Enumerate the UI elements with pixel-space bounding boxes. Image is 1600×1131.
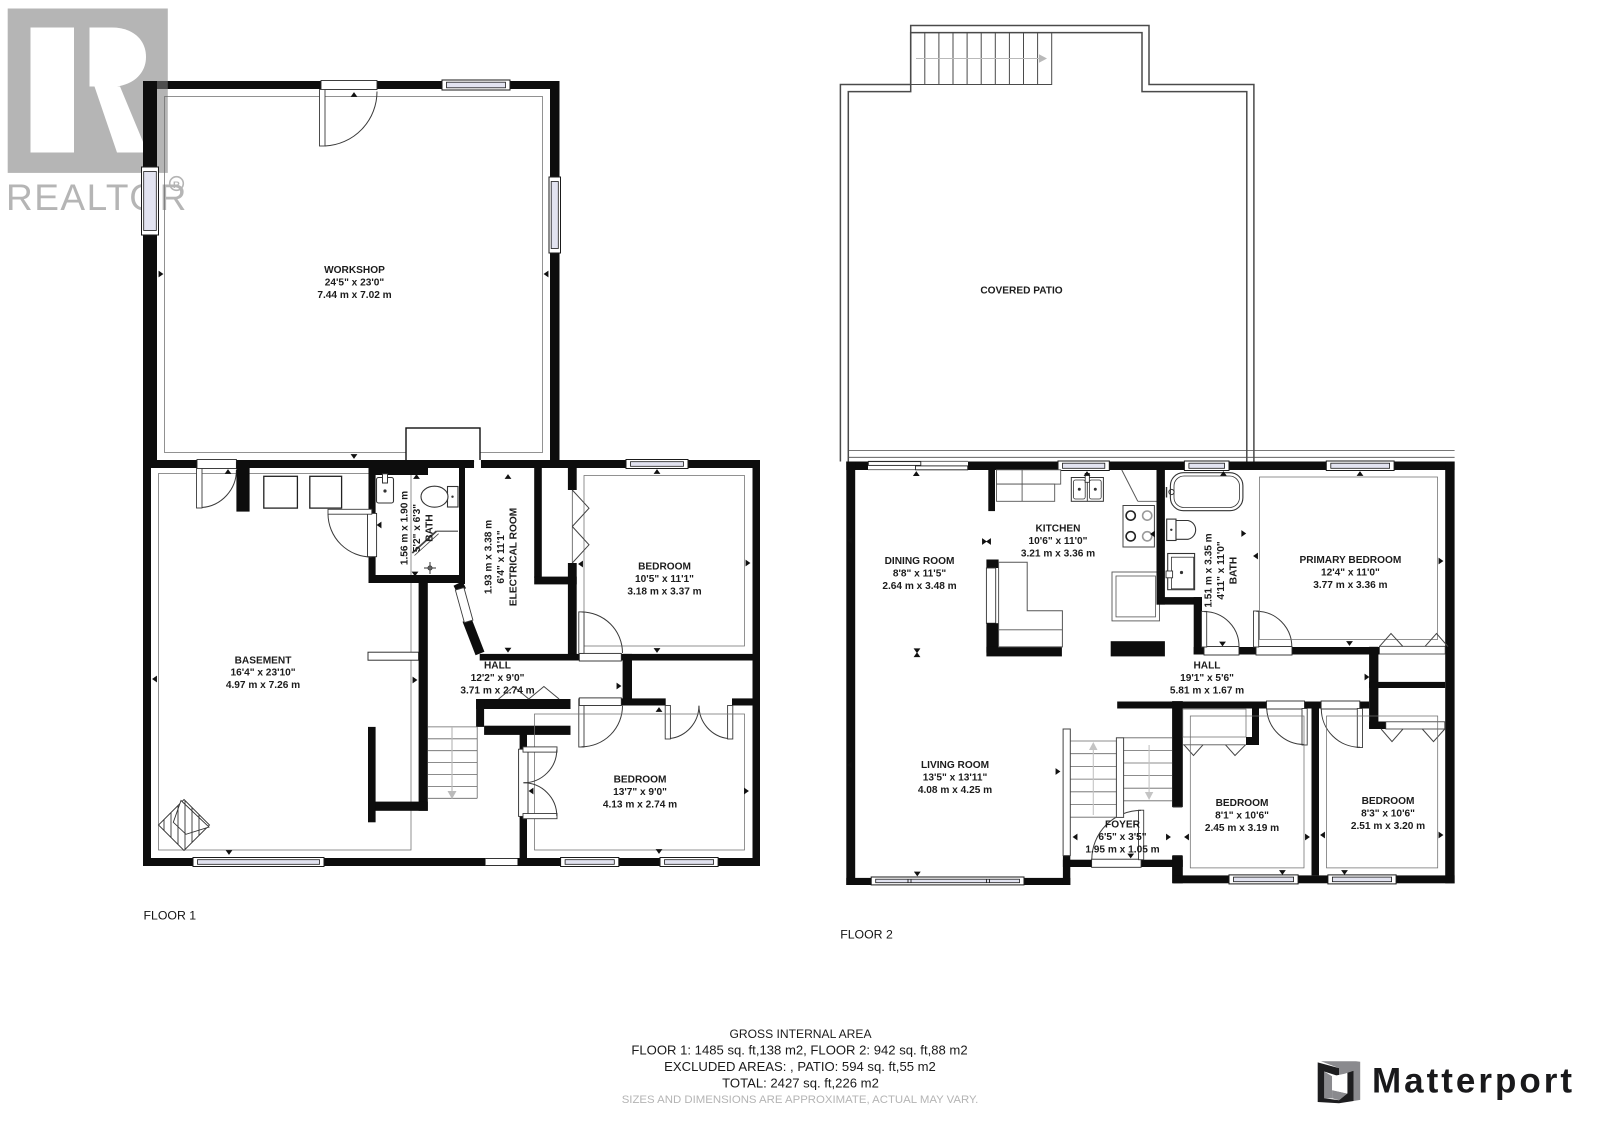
svg-text:5.81 m x 1.67 m: 5.81 m x 1.67 m [1170, 685, 1244, 696]
svg-text:SIZES AND DIMENSIONS ARE APPRO: SIZES AND DIMENSIONS ARE APPROXIMATE, AC… [622, 1094, 979, 1106]
svg-text:BATH: BATH [424, 514, 435, 541]
svg-text:4.08 m x 4.25 m: 4.08 m x 4.25 m [918, 785, 992, 796]
svg-text:4.97 m x 7.26 m: 4.97 m x 7.26 m [226, 680, 300, 691]
svg-text:ELECTRICAL ROOM: ELECTRICAL ROOM [508, 508, 519, 606]
svg-text:6'5" x 3'5": 6'5" x 3'5" [1098, 832, 1146, 843]
svg-text:4'11" x 11'0": 4'11" x 11'0" [1216, 541, 1227, 600]
svg-text:3.77 m x 3.36 m: 3.77 m x 3.36 m [1313, 580, 1387, 591]
svg-text:BATH: BATH [1229, 557, 1240, 584]
svg-text:10'5" x 11'1": 10'5" x 11'1" [635, 574, 694, 585]
svg-text:Matterport: Matterport [1372, 1062, 1575, 1101]
svg-text:1.56 m x 1.90 m: 1.56 m x 1.90 m [400, 491, 411, 565]
svg-text:R: R [173, 180, 180, 191]
svg-text:3.18 m x 3.37 m: 3.18 m x 3.37 m [627, 586, 701, 597]
svg-text:LIVING ROOM: LIVING ROOM [921, 760, 989, 771]
svg-text:TOTAL: 2427 sq. ft,226 m2: TOTAL: 2427 sq. ft,226 m2 [722, 1076, 879, 1091]
svg-text:1.93 m x 3.38 m: 1.93 m x 3.38 m [484, 520, 495, 594]
svg-text:BASEMENT: BASEMENT [235, 655, 293, 666]
svg-text:8'8" x 11'5": 8'8" x 11'5" [893, 568, 946, 579]
svg-text:COVERED PATIO: COVERED PATIO [980, 286, 1062, 297]
svg-text:4.13 m x 2.74 m: 4.13 m x 2.74 m [603, 799, 677, 810]
svg-text:19'1" x 5'6": 19'1" x 5'6" [1180, 673, 1234, 684]
svg-text:13'5" x 13'11": 13'5" x 13'11" [923, 772, 988, 783]
svg-text:FLOOR 2: FLOOR 2 [840, 928, 893, 942]
svg-text:12'2" x 9'0": 12'2" x 9'0" [471, 673, 525, 684]
svg-text:KITCHEN: KITCHEN [1036, 524, 1081, 535]
svg-text:WORKSHOP: WORKSHOP [324, 265, 385, 276]
svg-text:24'5" x 23'0": 24'5" x 23'0" [325, 277, 385, 288]
svg-text:HALL: HALL [484, 661, 511, 672]
svg-text:3.21 m x 3.36 m: 3.21 m x 3.36 m [1021, 548, 1095, 559]
svg-text:10'6" x 11'0": 10'6" x 11'0" [1029, 536, 1088, 547]
svg-text:13'7" x 9'0": 13'7" x 9'0" [613, 787, 667, 798]
svg-text:12'4" x 11'0": 12'4" x 11'0" [1321, 567, 1380, 578]
svg-text:2.45 m x 3.19 m: 2.45 m x 3.19 m [1205, 823, 1279, 834]
svg-text:6'4" x 11'1": 6'4" x 11'1" [496, 530, 507, 583]
svg-text:1.95 m x 1.05 m: 1.95 m x 1.05 m [1085, 844, 1159, 855]
svg-text:BEDROOM: BEDROOM [1362, 796, 1415, 807]
svg-text:8'1" x 10'6": 8'1" x 10'6" [1215, 810, 1269, 821]
svg-text:HALL: HALL [1194, 661, 1221, 672]
svg-text:FLOOR 1: FLOOR 1 [144, 909, 197, 923]
svg-text:3.71 m x 2.74 m: 3.71 m x 2.74 m [460, 685, 534, 696]
svg-text:BEDROOM: BEDROOM [1216, 798, 1269, 809]
svg-text:BEDROOM: BEDROOM [638, 562, 691, 573]
svg-text:EXCLUDED AREAS: , PATIO: 594 s: EXCLUDED AREAS: , PATIO: 594 sq. ft,55 m… [664, 1059, 936, 1074]
svg-text:DINING ROOM: DINING ROOM [885, 556, 955, 567]
svg-text:2.64 m x 3.48 m: 2.64 m x 3.48 m [882, 581, 956, 592]
svg-text:GROSS INTERNAL AREA: GROSS INTERNAL AREA [729, 1027, 872, 1041]
svg-text:PRIMARY BEDROOM: PRIMARY BEDROOM [1299, 555, 1401, 566]
svg-text:8'3" x 10'6": 8'3" x 10'6" [1361, 808, 1415, 819]
svg-text:7.44 m x 7.02 m: 7.44 m x 7.02 m [317, 290, 391, 301]
svg-text:5'2" x 6'3": 5'2" x 6'3" [412, 504, 423, 552]
svg-text:FLOOR 1: 1485 sq. ft,138 m2, F: FLOOR 1: 1485 sq. ft,138 m2, FLOOR 2: 94… [631, 1043, 967, 1058]
svg-text:2.51 m x 3.20 m: 2.51 m x 3.20 m [1351, 821, 1425, 832]
svg-text:16'4" x 23'10": 16'4" x 23'10" [230, 668, 295, 679]
svg-text:REALTOR: REALTOR [6, 177, 188, 218]
svg-text:1.51 m x 3.35 m: 1.51 m x 3.35 m [1204, 533, 1215, 607]
svg-text:BEDROOM: BEDROOM [614, 775, 667, 786]
svg-text:FOYER: FOYER [1105, 820, 1141, 831]
